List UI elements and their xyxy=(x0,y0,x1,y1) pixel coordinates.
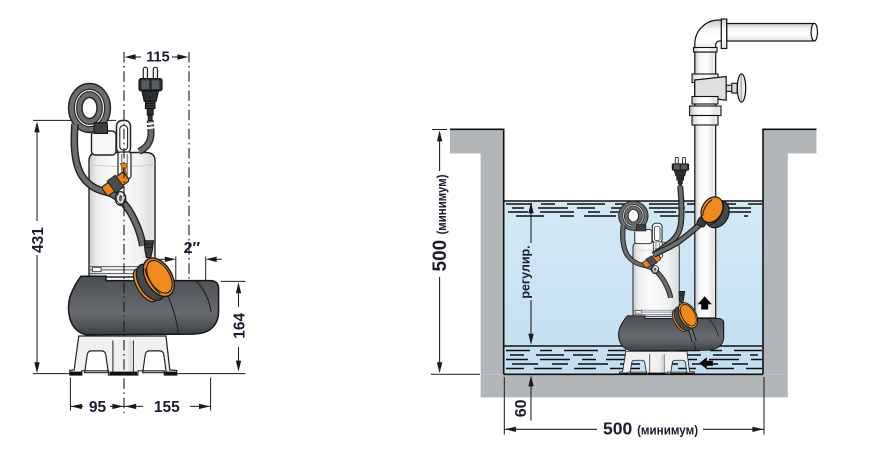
svg-text:500 (минимум): 500 (минимум) xyxy=(603,419,698,439)
svg-text:164: 164 xyxy=(232,312,249,338)
svg-text:115: 115 xyxy=(146,49,169,65)
svg-text:431: 431 xyxy=(30,227,47,253)
svg-text:2″: 2″ xyxy=(184,240,201,257)
svg-text:регулир.: регулир. xyxy=(519,245,533,298)
svg-text:155: 155 xyxy=(154,399,180,416)
svg-text:95: 95 xyxy=(89,399,107,416)
svg-text:500 (минимум): 500 (минимум) xyxy=(430,175,451,272)
svg-text:60: 60 xyxy=(513,399,530,417)
